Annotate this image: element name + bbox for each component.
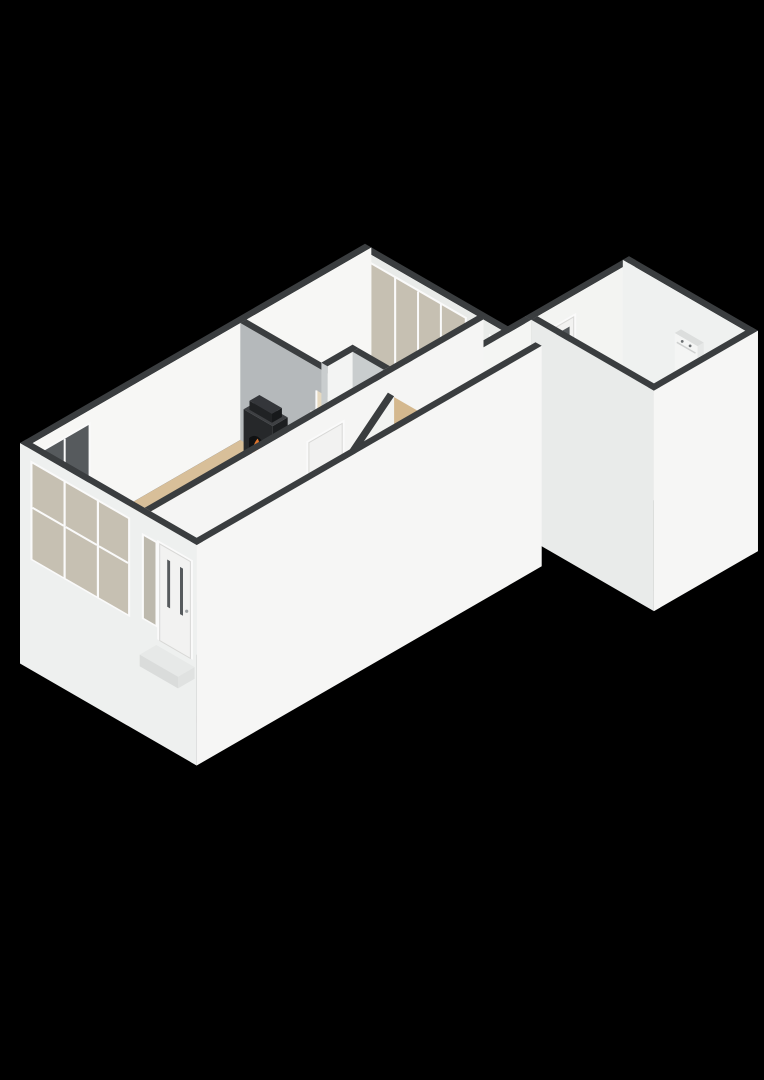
floorplan-3d-view[interactable] — [0, 0, 764, 1080]
floorplan-svg — [0, 0, 764, 1080]
